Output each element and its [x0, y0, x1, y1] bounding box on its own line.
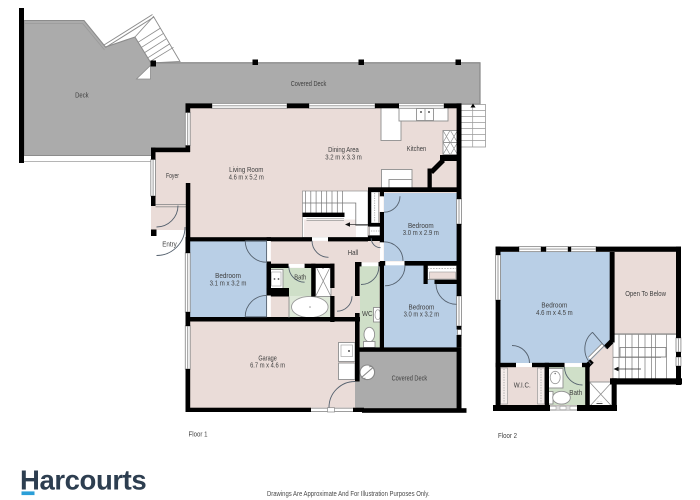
svg-text:Hall: Hall [348, 248, 359, 257]
svg-text:Entry: Entry [162, 239, 177, 248]
svg-text:Deck: Deck [75, 91, 89, 100]
svg-text:W.I.C.: W.I.C. [514, 381, 531, 390]
svg-text:3.1 m x 3.2 m: 3.1 m x 3.2 m [210, 279, 247, 288]
svg-text:Foyer: Foyer [166, 171, 179, 180]
svg-text:3.0 m x 3.2 m: 3.0 m x 3.2 m [404, 310, 440, 319]
svg-text:WC: WC [362, 309, 373, 318]
svg-text:Bath: Bath [569, 388, 582, 397]
svg-text:4.6 m x 4.5 m: 4.6 m x 4.5 m [536, 308, 573, 317]
svg-text:Covered Deck: Covered Deck [392, 373, 428, 382]
svg-text:Floor 2: Floor 2 [498, 431, 517, 440]
svg-text:Harcourts: Harcourts [20, 465, 146, 496]
svg-text:Bath: Bath [294, 273, 306, 282]
svg-text:Open To Below: Open To Below [625, 289, 666, 298]
svg-text:Kitchen: Kitchen [407, 144, 427, 153]
svg-text:Covered Deck: Covered Deck [291, 79, 327, 88]
svg-text:Drawings Are Approximate And F: Drawings Are Approximate And For Illustr… [267, 491, 430, 498]
svg-text:6.7 m x 4.6 m: 6.7 m x 4.6 m [250, 360, 285, 369]
svg-text:Floor 1: Floor 1 [189, 430, 208, 439]
svg-text:4.6 m x 5.2 m: 4.6 m x 5.2 m [229, 172, 264, 181]
svg-text:3.2 m x 3.3 m: 3.2 m x 3.3 m [325, 152, 362, 161]
svg-text:3.0 m x 2.9 m: 3.0 m x 2.9 m [403, 228, 439, 237]
